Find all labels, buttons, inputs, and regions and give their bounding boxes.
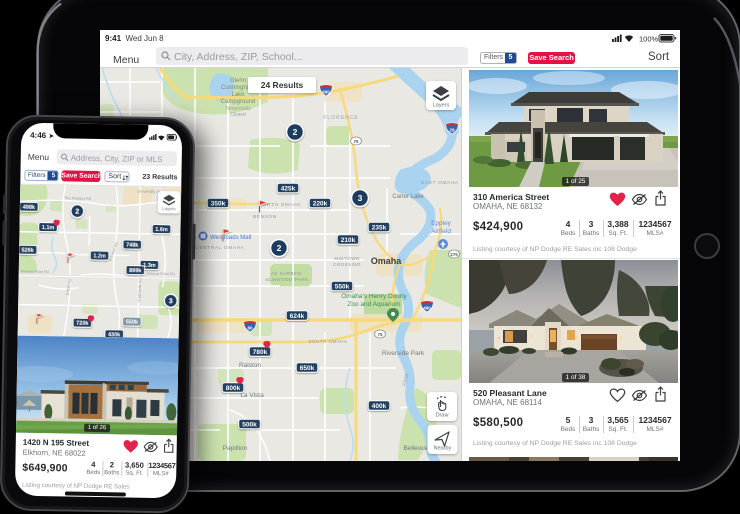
svg-text:Omaha: Omaha [371,256,403,266]
svg-text:MIDTOWN: MIDTOWN [334,256,359,261]
svg-text:Layers: Layers [162,206,176,211]
svg-text:Westroads Mall: Westroads Mall [210,235,251,241]
svg-text:425k: 425k [281,185,296,192]
svg-text:3: 3 [358,193,363,203]
svg-text:29: 29 [449,128,455,133]
svg-text:Draw: Draw [436,413,449,419]
svg-text:1.2m: 1.2m [93,254,106,260]
svg-text:80: 80 [247,326,253,331]
svg-text:498k: 498k [23,205,36,211]
svg-text:1.1m: 1.1m [42,225,55,231]
svg-text:AK SARBEN:: AK SARBEN: [271,271,303,276]
svg-text:400k: 400k [372,403,387,410]
svg-text:526k: 526k [21,248,34,254]
svg-text:The Maddox Rd: The Maddox Rd [64,196,91,200]
svg-text:2: 2 [277,243,282,253]
svg-text:210k: 210k [341,237,356,244]
svg-text:680: 680 [322,90,330,95]
svg-text:Campground: Campground [221,99,256,105]
svg-text:480: 480 [423,306,431,311]
svg-text:24 Results: 24 Results [261,80,304,90]
svg-text:1.6m: 1.6m [155,227,168,233]
svg-text:Nearby: Nearby [434,446,452,452]
svg-text:Ralston: Ralston [239,362,261,369]
svg-text:BENSON: BENSON [253,214,277,219]
svg-text:2: 2 [75,209,79,216]
svg-text:Papillion: Papillion [223,445,248,452]
svg-text:Lake: Lake [231,92,245,98]
svg-text:500k: 500k [242,421,257,428]
svg-text:Mineral Point Rd: Mineral Point Rd [21,270,49,274]
svg-text:235k: 235k [372,224,387,231]
svg-text:Mineral Point Rd: Mineral Point Rd [147,272,175,276]
svg-text:550k: 550k [335,283,350,290]
svg-text:Layers: Layers [433,103,450,109]
svg-text:350k: 350k [211,200,226,207]
svg-text:2: 2 [293,127,298,137]
svg-text:EAST OMAHA: EAST OMAHA [421,180,458,185]
svg-text:Bellevue: Bellevue [404,445,429,452]
svg-text:CROSSING: CROSSING [333,262,361,267]
svg-text:220k: 220k [313,200,328,207]
svg-text:550k: 550k [126,320,139,326]
svg-text:720k: 720k [76,321,89,327]
svg-text:Riverside Park: Riverside Park [382,350,425,357]
svg-text:899k: 899k [129,268,142,274]
svg-text:La Vista: La Vista [240,392,264,399]
svg-text:Carter Lake: Carter Lake [392,194,424,200]
svg-text:ELMWOOD PARK: ELMWOOD PARK [266,277,309,282]
svg-text:CENTRAL OMAHA: CENTRAL OMAHA [196,245,245,250]
svg-text:75: 75 [353,139,359,144]
svg-text:650k: 650k [300,365,315,372]
svg-text:FLORENCE: FLORENCE [323,115,358,121]
svg-text:3: 3 [169,298,173,305]
svg-text:Airfield: Airfield [431,228,451,235]
svg-text:SOUTH OMAHA: SOUTH OMAHA [308,339,347,344]
svg-text:780k: 780k [253,349,268,356]
svg-text:800k: 800k [226,385,241,392]
svg-text:100%: 100% [639,35,659,44]
svg-text:Eppley: Eppley [431,220,452,227]
svg-text:275: 275 [450,252,458,257]
svg-text:Closed: Closed [230,112,246,118]
svg-text:75: 75 [377,332,383,337]
svg-text:748k: 748k [126,243,139,249]
svg-text:Zoo and Aquarium: Zoo and Aquarium [347,301,400,308]
svg-text:Omaha's Henry Doorly: Omaha's Henry Doorly [341,293,407,300]
svg-text:Glenn: Glenn [230,78,246,84]
svg-text:624k: 624k [290,313,305,320]
